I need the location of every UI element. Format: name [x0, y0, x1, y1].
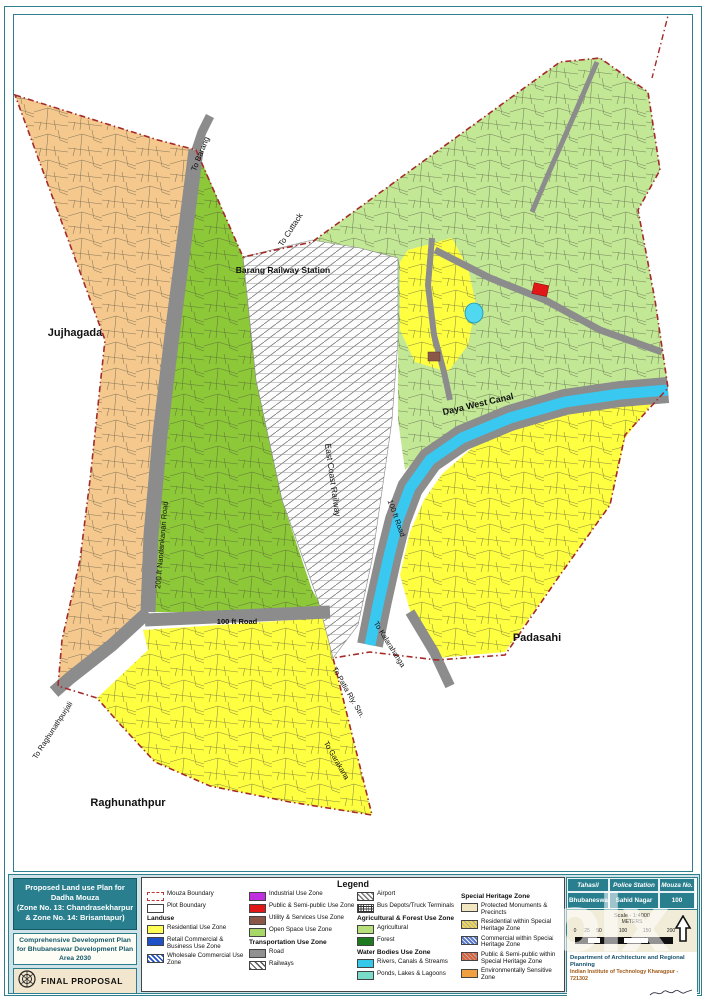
residential-swatch: [147, 925, 164, 934]
legend-label: Open Space Use Zone: [269, 927, 332, 934]
legend-label: Airport: [377, 891, 395, 898]
plan-title-box: Proposed Land use Plan for Dadha Mouza (…: [13, 878, 137, 930]
legend-label: Protected Monuments & Precincts: [481, 903, 561, 917]
legend-label: Ponds, Lakes & Lagoons: [377, 971, 446, 978]
industrial-swatch: [249, 892, 266, 901]
legend-label: Public & Semi-public Use Zone: [269, 903, 354, 910]
pond: [465, 303, 483, 323]
label-to-cuttack: To Cuttack: [277, 211, 306, 248]
label-barang-railway-station: Barang Railway Station: [236, 265, 330, 275]
wholesale-commercial-swatch: [147, 954, 164, 963]
north-arrow-icon: [674, 915, 692, 948]
scale-tick: 150: [643, 928, 651, 934]
table-value-tahasil: Bhubaneswar: [567, 892, 609, 909]
plan-title-line2: (Zone No. 13: Chandrasekharpur & Zone No…: [16, 903, 134, 923]
legend-header-transportation: Transportation Use Zone: [249, 939, 355, 946]
scale-ticks: 0 25 50 100 150 200: [575, 928, 671, 935]
legend-item: Industrial Use Zone: [249, 891, 355, 901]
place-label-padasahi: Padasahi: [513, 632, 561, 644]
legend-column-3: Airport Bus Depots/Truck Terminals Agric…: [357, 891, 459, 983]
legend-label: Industrial Use Zone: [269, 891, 323, 898]
label-100ft-road-south: 100 ft Road: [217, 617, 258, 626]
scale-tick: 25: [584, 928, 590, 934]
table-header-tahasil: Tahasil: [567, 878, 609, 892]
bus-depot-swatch: [357, 904, 374, 913]
legend: Legend Mouza Boundary Plot Boundary Land…: [141, 877, 565, 992]
airport-swatch: [357, 892, 374, 901]
legend-label: Residential Use Zone: [167, 925, 226, 932]
legend-label: Residential within Special Heritage Zone: [481, 919, 561, 933]
place-label-jujhagada: Jujhagada: [48, 327, 103, 339]
legend-column-1: Mouza Boundary Plot Boundary Landuse Res…: [147, 891, 247, 970]
legend-label: Utility & Services Use Zone: [269, 915, 344, 922]
legend-item: Bus Depots/Truck Terminals: [357, 903, 459, 913]
map-sheet: Jujhagada Padasahi Raghunathpur Barang R…: [0, 0, 706, 999]
legend-item: Public & Semi-public Use Zone: [249, 903, 355, 913]
legend-label: Public & Semi-public within Special Heri…: [481, 952, 561, 966]
plan-title-line1: Proposed Land use Plan for Dadha Mouza: [16, 883, 134, 903]
legend-item: Plot Boundary: [147, 903, 247, 913]
legend-column-2: Industrial Use Zone Public & Semi-public…: [249, 891, 355, 973]
scale-tick: 100: [619, 928, 627, 934]
legend-item: Airport: [357, 891, 459, 901]
legend-header-water-bodies: Water Bodies Use Zone: [357, 949, 459, 956]
map-sheet-footer: Proposed Land use Plan for Dadha Mouza (…: [8, 874, 700, 994]
legend-item: Open Space Use Zone: [249, 927, 355, 937]
legend-label: Mouza Boundary: [167, 891, 214, 898]
signature-scribble: [648, 988, 694, 998]
legend-label: Wholesale Commercial Use Zone: [167, 953, 247, 967]
scale-area: Scale - 1:4000 METERS 0 25 50 100 150 20…: [567, 909, 697, 952]
commercial-heritage-swatch: [461, 936, 478, 945]
utility-parcel: [428, 352, 440, 361]
legend-item: Wholesale Commercial Use Zone: [147, 953, 247, 967]
boundary-leader-line: [652, 15, 670, 78]
legend-header-agricultural-forest: Agricultural & Forest Use Zone: [357, 915, 459, 922]
legend-label: Retail Commercial & Business Use Zone: [167, 937, 247, 951]
legend-column-4: Special Heritage Zone Protected Monument…: [461, 891, 561, 985]
mouza-boundary-swatch: [147, 892, 164, 901]
legend-item: Utility & Services Use Zone: [249, 915, 355, 925]
legend-item: Mouza Boundary: [147, 891, 247, 901]
legend-item: Residential within Special Heritage Zone: [461, 919, 561, 933]
legend-item: Road: [249, 949, 355, 959]
iit-kharagpur-logo-icon: [18, 970, 36, 993]
legend-label: Rivers, Canals & Streams: [377, 959, 448, 966]
legend-label: Forest: [377, 937, 395, 944]
legend-label: Environmentally Sensitive Zone: [481, 968, 561, 982]
table-header-mouza-no: Mouza No.: [659, 878, 695, 892]
railways-swatch: [249, 961, 266, 970]
table-header-police-station: Police Station: [609, 878, 659, 892]
road-swatch: [249, 949, 266, 958]
landuse-map: Jujhagada Padasahi Raghunathpur Barang R…: [14, 15, 692, 871]
legend-header-special-heritage: Special Heritage Zone: [461, 893, 561, 900]
legend-label: Bus Depots/Truck Terminals: [377, 903, 454, 910]
legend-item: Retail Commercial & Business Use Zone: [147, 937, 247, 951]
department-line1: Department of Architecture and Regional …: [570, 955, 694, 969]
title-block: Proposed Land use Plan for Dadha Mouza (…: [13, 878, 137, 989]
rivers-canals-swatch: [357, 959, 374, 968]
environmentally-sensitive-swatch: [461, 969, 478, 978]
legend-item: Protected Monuments & Precincts: [461, 903, 561, 917]
info-block: Tahasil Police Station Mouza No. Bhubane…: [566, 877, 698, 992]
legend-item: Environmentally Sensitive Zone: [461, 968, 561, 982]
map-area: Jujhagada Padasahi Raghunathpur Barang R…: [13, 14, 693, 872]
department-credits: Department of Architecture and Regional …: [567, 952, 697, 999]
public-semipublic-swatch: [249, 904, 266, 913]
scale-tick: 0: [574, 928, 577, 934]
legend-item: Agricultural: [357, 925, 459, 935]
legend-item: Commercial within Special Heritage Zone: [461, 936, 561, 950]
plan-subtitle: Comprehensive Development Plan for Bhuba…: [13, 933, 137, 965]
final-proposal-box: FINAL PROPOSAL: [13, 968, 137, 994]
agricultural-swatch: [357, 925, 374, 934]
open-space-swatch: [249, 928, 266, 937]
plot-boundary-swatch: [147, 904, 164, 913]
label-to-raghunathpurjali: To Raghunathpurjali: [30, 700, 74, 761]
legend-header-landuse: Landuse: [147, 915, 247, 922]
legend-item: Railways: [249, 961, 355, 971]
legend-item: Rivers, Canals & Streams: [357, 959, 459, 969]
residential-heritage-swatch: [461, 920, 478, 929]
scale-tick: 50: [596, 928, 602, 934]
legend-item: Residential Use Zone: [147, 925, 247, 935]
forest-swatch: [357, 937, 374, 946]
legend-label: Road: [269, 949, 284, 956]
legend-item: Ponds, Lakes & Lagoons: [357, 971, 459, 981]
table-value-police-station: Sahid Nagar: [609, 892, 659, 909]
legend-item: Forest: [357, 937, 459, 947]
signature-block: Professor B.K. Sengupta: [632, 985, 694, 999]
utility-services-swatch: [249, 916, 266, 925]
location-table: Tahasil Police Station Mouza No. Bhubane…: [567, 878, 697, 909]
table-value-mouza-no: 100: [659, 892, 695, 909]
legend-label: Plot Boundary: [167, 903, 206, 910]
place-label-raghunathpur: Raghunathpur: [90, 797, 166, 809]
scale-bar: [575, 937, 673, 944]
public-heritage-swatch: [461, 952, 478, 961]
legend-label: Railways: [269, 961, 294, 968]
final-proposal-label: FINAL PROPOSAL: [41, 976, 123, 986]
legend-item: Public & Semi-public within Special Heri…: [461, 952, 561, 966]
retail-commercial-swatch: [147, 937, 164, 946]
legend-label: Commercial within Special Heritage Zone: [481, 936, 561, 950]
legend-label: Agricultural: [377, 925, 408, 932]
protected-monuments-swatch: [461, 903, 478, 912]
legend-title: Legend: [142, 879, 564, 889]
department-line2: Indian Institute of Technology Kharagpur…: [570, 969, 694, 983]
ponds-lakes-swatch: [357, 971, 374, 980]
